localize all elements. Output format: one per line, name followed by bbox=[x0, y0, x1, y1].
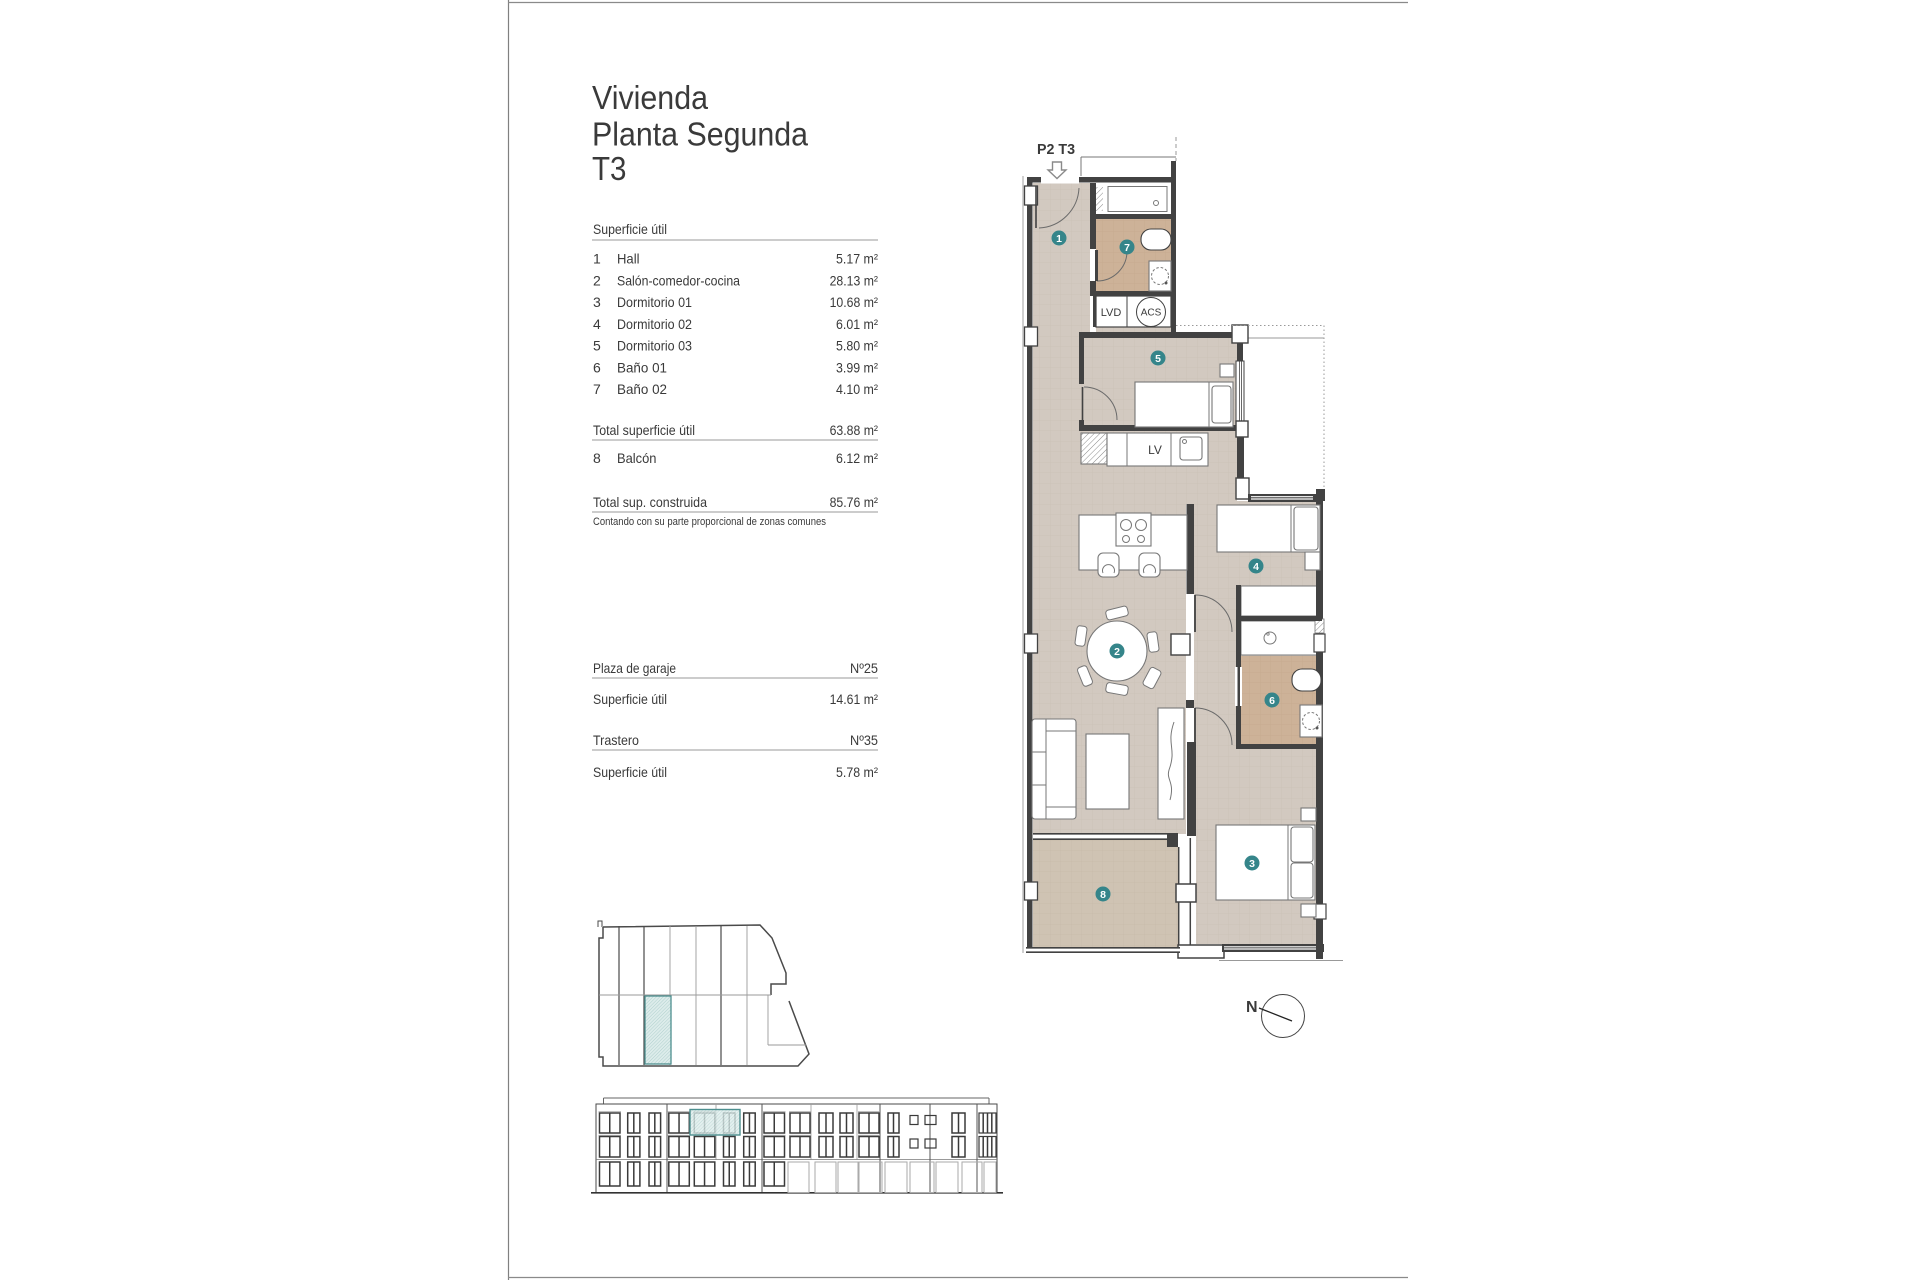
svg-text:LVD: LVD bbox=[1101, 307, 1122, 319]
svg-text:5.78 m²: 5.78 m² bbox=[836, 764, 878, 780]
svg-text:Salón-comedor-cocina: Salón-comedor-cocina bbox=[617, 272, 740, 288]
svg-text:Vivienda: Vivienda bbox=[592, 79, 709, 116]
svg-text:6.01 m²: 6.01 m² bbox=[836, 316, 878, 332]
svg-text:Dormitorio 03: Dormitorio 03 bbox=[617, 338, 692, 354]
svg-text:1: 1 bbox=[593, 251, 601, 267]
svg-text:7: 7 bbox=[593, 381, 601, 397]
svg-text:T3: T3 bbox=[592, 150, 627, 187]
svg-text:5: 5 bbox=[593, 338, 601, 354]
svg-text:Trastero: Trastero bbox=[593, 732, 639, 748]
svg-text:LV: LV bbox=[1148, 443, 1162, 457]
svg-text:14.61 m²: 14.61 m² bbox=[830, 691, 879, 707]
svg-text:3: 3 bbox=[593, 294, 601, 310]
svg-text:3: 3 bbox=[1249, 858, 1255, 870]
svg-text:2: 2 bbox=[593, 272, 601, 288]
svg-text:8: 8 bbox=[593, 450, 601, 466]
svg-text:Plaza de garaje: Plaza de garaje bbox=[593, 660, 676, 676]
svg-text:63.88 m²: 63.88 m² bbox=[830, 422, 879, 438]
svg-text:Hall: Hall bbox=[617, 251, 640, 267]
svg-text:6.12 m²: 6.12 m² bbox=[836, 450, 878, 466]
svg-text:ACS: ACS bbox=[1141, 308, 1162, 319]
svg-text:Dormitorio 02: Dormitorio 02 bbox=[617, 316, 692, 332]
svg-text:85.76 m²: 85.76 m² bbox=[830, 494, 879, 510]
svg-text:Baño 02: Baño 02 bbox=[617, 381, 667, 397]
svg-text:Baño 01: Baño 01 bbox=[617, 359, 667, 375]
svg-text:Superficie útil: Superficie útil bbox=[593, 691, 667, 707]
svg-text:4: 4 bbox=[593, 316, 601, 332]
svg-text:3.99 m²: 3.99 m² bbox=[836, 359, 878, 375]
svg-text:5: 5 bbox=[1155, 353, 1161, 365]
svg-text:28.13 m²: 28.13 m² bbox=[830, 272, 879, 288]
svg-text:N: N bbox=[1246, 999, 1258, 1016]
svg-text:6: 6 bbox=[1269, 695, 1275, 707]
svg-text:2: 2 bbox=[1114, 646, 1120, 658]
svg-text:Nº25: Nº25 bbox=[850, 660, 878, 676]
svg-text:Dormitorio 01: Dormitorio 01 bbox=[617, 294, 692, 310]
svg-text:5.17 m²: 5.17 m² bbox=[836, 251, 878, 267]
svg-text:6: 6 bbox=[593, 359, 601, 375]
svg-text:10.68 m²: 10.68 m² bbox=[830, 294, 879, 310]
svg-text:8: 8 bbox=[1100, 889, 1106, 901]
svg-text:Superficie útil: Superficie útil bbox=[593, 221, 667, 237]
svg-text:7: 7 bbox=[1124, 242, 1130, 254]
svg-text:Nº35: Nº35 bbox=[850, 732, 878, 748]
svg-text:4: 4 bbox=[1253, 561, 1259, 573]
svg-text:1: 1 bbox=[1056, 233, 1062, 245]
svg-text:Total sup. construida: Total sup. construida bbox=[593, 494, 707, 510]
svg-text:Contando con su parte proporci: Contando con su parte proporcional de zo… bbox=[593, 516, 826, 528]
svg-text:Balcón: Balcón bbox=[617, 450, 657, 466]
svg-text:Planta Segunda: Planta Segunda bbox=[592, 116, 809, 153]
svg-text:Total superficie útil: Total superficie útil bbox=[593, 422, 695, 438]
svg-text:5.80 m²: 5.80 m² bbox=[836, 338, 878, 354]
svg-text:4.10 m²: 4.10 m² bbox=[836, 381, 878, 397]
svg-text:P2 T3: P2 T3 bbox=[1037, 142, 1075, 158]
svg-text:Superficie útil: Superficie útil bbox=[593, 764, 667, 780]
